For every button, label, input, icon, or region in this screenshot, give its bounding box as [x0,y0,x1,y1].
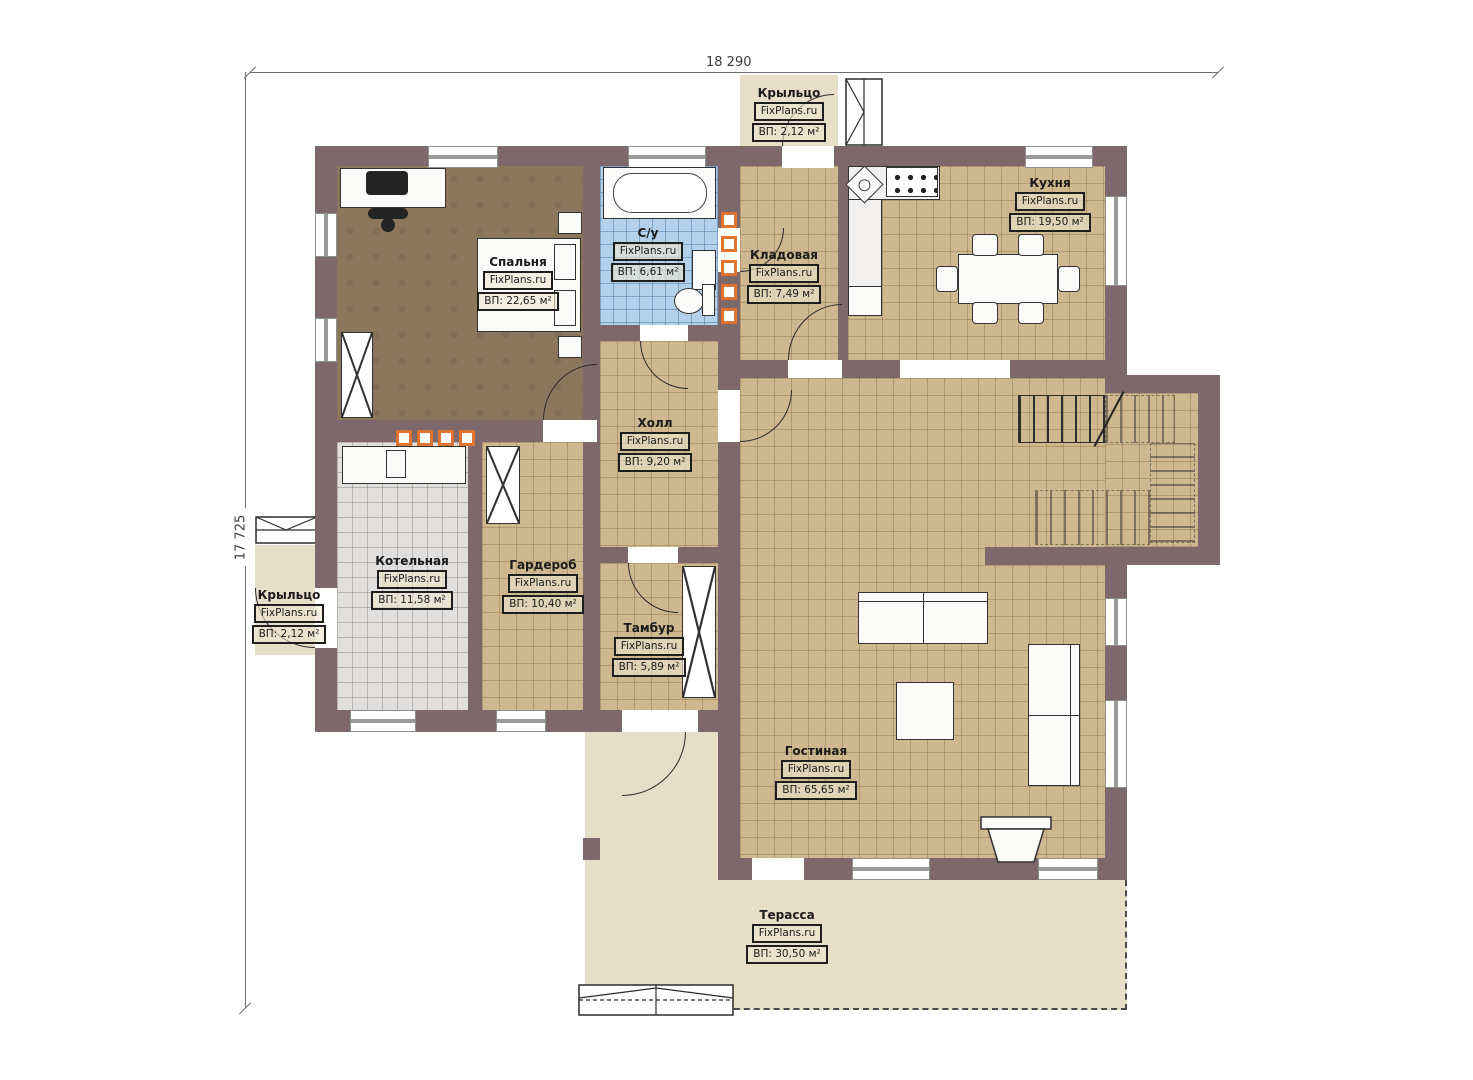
radiator-bedroom [396,430,475,446]
stairs-turn-flight-above [1150,443,1195,543]
room-brand: FixPlans.ru [781,760,852,779]
room-name: Гостиная [785,744,847,758]
kitchen-appliance [848,286,882,316]
room-name: Спальня [489,255,547,269]
room-area: ВП: 9,20 м² [618,453,693,472]
room-label-porch-top: Крыльцо FixPlans.ru ВП: 2,12 м² [734,86,844,142]
room-name: Кухня [1029,176,1070,190]
radiator-segment [721,308,737,324]
room-area: ВП: 11,58 м² [371,591,453,610]
room-label-hall: Холл FixPlans.ru ВП: 9,20 м² [600,416,710,472]
boiler-sink [386,450,406,478]
living-coffee-table [896,682,954,740]
bedroom-chair-base [381,218,395,232]
floor-plan-canvas: 18 290 17 725 [0,0,1473,1080]
room-area: ВП: 22,65 м² [477,292,559,311]
room-name: Терасса [759,908,814,922]
steps-icon [255,516,318,544]
window-living-right-2 [1105,700,1127,788]
room-label-storage: Кладовая FixPlans.ru ВП: 7,49 м² [729,248,839,304]
stairs-lower-flight-above [1035,490,1150,545]
room-area: ВП: 2,12 м² [752,123,827,142]
window-kitchen-top [1025,146,1093,168]
room-label-porch-left: Крыльцо FixPlans.ru ВП: 2,12 м² [234,588,344,644]
steps-icon [845,78,883,146]
room-name: С/у [637,226,658,240]
room-label-bedroom: Спальня FixPlans.ru ВП: 22,65 м² [463,255,573,311]
radiator-segment [417,430,433,446]
room-name: Холл [637,416,672,430]
opening-kitchen-living [900,360,1010,378]
room-brand: FixPlans.ru [749,264,820,283]
room-area: ВП: 7,49 м² [747,285,822,304]
living-armchair [980,816,1052,864]
window-boiler-bottom [350,710,416,732]
bedroom-wardrobe-cabinet [341,332,373,418]
opening-porch-top-door [782,146,834,168]
sofa-seat-divider [1029,715,1079,716]
room-name: Гардероб [509,558,576,572]
radiator-segment [396,430,412,446]
wall-stairbay-right [1198,375,1220,565]
opening-hall-living-door [718,390,740,442]
porch-top-steps [845,78,883,146]
armchair-icon [980,816,1052,864]
room-area: ВП: 6,61 м² [611,263,686,282]
window-bathroom-top [628,146,706,168]
opening-living-terrace-door [752,858,804,880]
wardrobe-cabinet [486,446,520,524]
window-bedroom-left-2 [315,318,337,362]
window-kitchen-right [1105,196,1127,286]
room-name: Кладовая [750,248,818,262]
room-area: ВП: 30,50 м² [746,945,828,964]
sofa-seat-divider [923,593,924,643]
radiator-segment [438,430,454,446]
dining-chair [1018,234,1044,256]
stairs-upper-flight [1018,395,1105,443]
window-bedroom-top [428,146,498,168]
kitchen-sink-drain [856,177,873,194]
room-name: Крыльцо [758,86,821,100]
dimension-line-top [250,72,1218,73]
room-area: ВП: 10,40 м² [502,595,584,614]
room-brand: FixPlans.ru [508,574,579,593]
toilet-bowl [674,288,704,314]
living-sofa-vertical [1028,644,1080,786]
opening-storage-door [788,360,842,378]
room-label-kitchen: Кухня FixPlans.ru ВП: 19,50 м² [995,176,1105,232]
porch-left-steps [255,516,318,544]
opening-bedroom-door [543,420,597,442]
room-area: ВП: 65,65 м² [775,781,857,800]
bedroom-nightstand [558,212,582,234]
wall-stairbay-bottom [985,547,1220,565]
opening-vestibule-terrace-door [622,710,698,732]
radiator-segment [459,430,475,446]
cabinet-x-icon [342,333,372,417]
room-brand: FixPlans.ru [613,242,684,261]
dimension-label-width: 18 290 [700,55,758,70]
room-brand: FixPlans.ru [614,637,685,656]
room-brand: FixPlans.ru [1015,192,1086,211]
bathtub-basin [613,173,707,213]
room-label-terrace: Терасса FixPlans.ru ВП: 30,50 м² [732,908,842,964]
room-label-living: Гостиная FixPlans.ru ВП: 65,65 м² [761,744,871,800]
room-brand: FixPlans.ru [377,570,448,589]
wall-stub [583,838,600,860]
room-area: ВП: 2,12 м² [252,625,327,644]
room-area: ВП: 19,50 м² [1009,213,1091,232]
radiator-segment [721,212,737,228]
dining-chair [1018,302,1044,324]
room-brand: FixPlans.ru [254,604,325,623]
wall-boiler-wardrobe-divider [468,442,482,710]
kitchen-stove [886,167,938,197]
bedroom-nightstand [558,336,582,358]
window-wardrobe-bottom [496,710,546,732]
bedroom-printer [366,171,408,195]
dining-table [958,254,1058,304]
dimension-label-height: 17 725 [233,509,248,567]
room-brand: FixPlans.ru [483,271,554,290]
window-bedroom-left-1 [315,213,337,257]
opening-hall-vestibule-door [628,547,678,563]
terrace-steps [578,984,734,1016]
room-name: Котельная [375,554,449,568]
room-brand: FixPlans.ru [754,102,825,121]
room-label-vestibule: Тамбур FixPlans.ru ВП: 5,89 м² [594,621,704,677]
cabinet-x-icon [487,447,519,523]
opening-bathroom-door [640,325,688,341]
room-name: Крыльцо [258,588,321,602]
dining-chair [1058,266,1080,292]
dining-chair [972,302,998,324]
dining-chair [936,266,958,292]
room-label-bathroom: С/у FixPlans.ru ВП: 6,61 м² [593,226,703,282]
room-brand: FixPlans.ru [752,924,823,943]
toilet-tank [702,284,715,316]
dining-chair [972,234,998,256]
room-area: ВП: 5,89 м² [612,658,687,677]
steps-icon [578,984,734,1016]
room-brand: FixPlans.ru [620,432,691,451]
living-sofa-horizontal [858,592,988,644]
room-name: Тамбур [624,621,675,635]
room-label-boiler: Котельная FixPlans.ru ВП: 11,58 м² [357,554,467,610]
window-living-bottom-1 [852,858,930,880]
window-living-right-1 [1105,598,1127,646]
bathtub [603,167,716,219]
room-label-wardrobe: Гардероб FixPlans.ru ВП: 10,40 м² [488,558,598,614]
